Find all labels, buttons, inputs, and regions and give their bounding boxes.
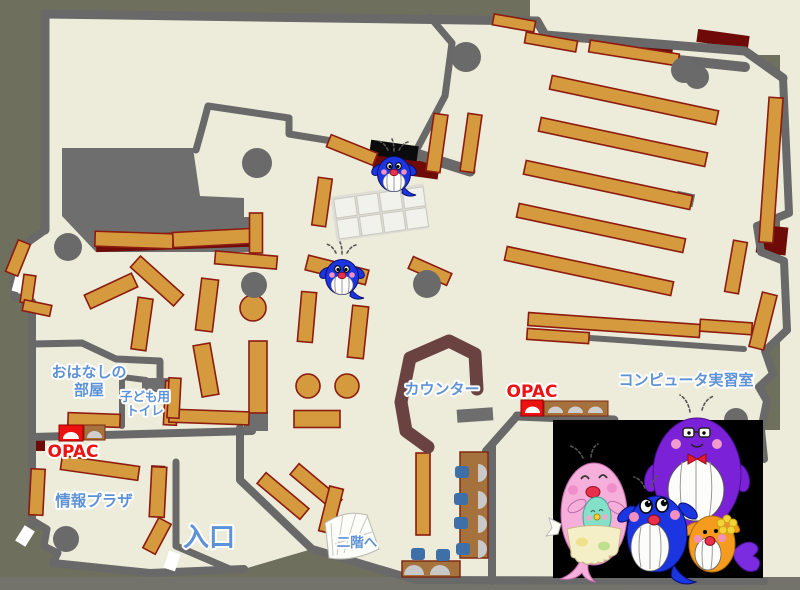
bookshelf bbox=[700, 319, 753, 335]
label-computer-room: コンピュータ実習室 bbox=[618, 371, 753, 389]
bookshelf bbox=[297, 291, 316, 342]
label-kids-toilet: トイレ bbox=[126, 403, 164, 418]
pillar bbox=[53, 526, 79, 552]
bookshelf bbox=[169, 409, 249, 425]
bookshelf bbox=[173, 228, 252, 247]
label-to-second-floor: 二階へ bbox=[337, 534, 378, 551]
pillar bbox=[241, 272, 267, 298]
pillar bbox=[451, 42, 481, 72]
wall bbox=[517, 416, 614, 420]
bookshelf bbox=[149, 467, 167, 518]
label-opac-left: OPAC bbox=[48, 442, 99, 462]
chair bbox=[411, 548, 425, 560]
bookshelf bbox=[249, 341, 267, 413]
chair bbox=[454, 493, 468, 505]
label-storytelling-room: 部屋 bbox=[74, 381, 104, 399]
opac-station-left bbox=[59, 425, 105, 441]
pillar bbox=[685, 65, 709, 89]
label-storytelling-room: おはなしの bbox=[51, 363, 126, 381]
label-kids-toilet: 子ども用 bbox=[120, 389, 170, 404]
pillar bbox=[54, 233, 82, 261]
opac-station-right bbox=[521, 400, 608, 416]
bookshelf bbox=[294, 411, 340, 428]
bookshelf bbox=[95, 231, 173, 249]
label-info-plaza: 情報プラザ bbox=[55, 491, 133, 510]
round-table bbox=[296, 374, 320, 398]
chair bbox=[436, 549, 450, 561]
library-floor-map: おはなしの 部屋 子ども用 トイレ OPAC 情報プラザ 入口 カウンター OP… bbox=[0, 0, 800, 590]
whale-family-illustration bbox=[546, 395, 763, 584]
pillar bbox=[413, 270, 441, 298]
bookshelf bbox=[29, 469, 45, 516]
label-counter: カウンター bbox=[404, 380, 479, 398]
gray-fixture bbox=[457, 407, 494, 422]
label-opac-right: OPAC bbox=[507, 382, 558, 402]
chair bbox=[456, 543, 470, 555]
round-table bbox=[335, 374, 359, 398]
bookshelf bbox=[416, 453, 430, 535]
bookshelf bbox=[250, 213, 263, 253]
round-table bbox=[240, 295, 266, 321]
chair bbox=[454, 517, 468, 529]
label-entrance: 入口 bbox=[183, 523, 235, 553]
pillar bbox=[242, 148, 272, 178]
chair bbox=[455, 466, 469, 478]
floor-map-svg: おはなしの 部屋 子ども用 トイレ OPAC 情報プラザ 入口 カウンター OP… bbox=[0, 0, 800, 590]
